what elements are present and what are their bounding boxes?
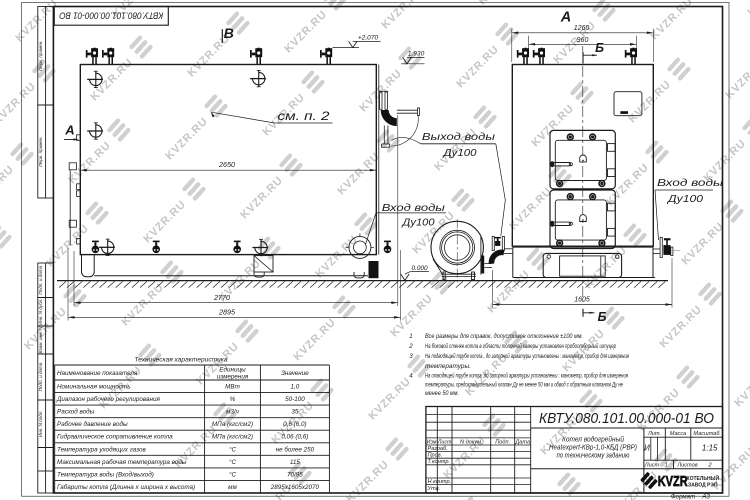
svg-text:Вход воды: Вход воды bbox=[382, 202, 445, 214]
svg-text:Подп. и дата: Подп. и дата bbox=[38, 362, 43, 391]
svg-text:3: 3 bbox=[409, 353, 413, 360]
svg-text:0,6 (6,0): 0,6 (6,0) bbox=[283, 421, 306, 428]
svg-text:Рабочее давление воды: Рабочее давление воды bbox=[57, 420, 128, 428]
svg-text:Взам. инв. N: Взам. инв. N bbox=[38, 326, 43, 353]
svg-text:Ду100: Ду100 bbox=[667, 194, 704, 205]
svg-text:Масштаб: Масштаб bbox=[693, 431, 720, 437]
svg-text:Подп. и дата: Подп. и дата bbox=[38, 265, 43, 294]
svg-text:Heatexpert-КВр-1,0-КБД (РВР): Heatexpert-КВр-1,0-КБД (РВР) bbox=[549, 445, 637, 452]
svg-text:Котел водогрейный: Котел водогрейный bbox=[562, 436, 624, 444]
svg-text:Вход воды: Вход воды bbox=[657, 177, 723, 189]
svg-text:Подп.: Подп. bbox=[495, 439, 510, 445]
svg-text:Формат: Формат bbox=[671, 494, 696, 500]
svg-text:Температура воды (Вход/выход): Температура воды (Вход/выход) bbox=[57, 470, 154, 478]
svg-text:KVZR: KVZR bbox=[658, 474, 688, 490]
svg-text:2: 2 bbox=[408, 343, 413, 350]
svg-text:мм: мм bbox=[228, 484, 237, 491]
svg-text:Изм: Изм bbox=[427, 439, 437, 445]
svg-text:Масса: Масса bbox=[670, 431, 687, 437]
svg-text:Н.контр.: Н.контр. bbox=[428, 479, 452, 485]
svg-text:Диапазон рабочего регулировани: Диапазон рабочего регулирования bbox=[56, 395, 160, 403]
svg-text:Выход воды: Выход воды bbox=[422, 131, 495, 143]
svg-text:И: И bbox=[644, 443, 650, 452]
svg-text:35: 35 bbox=[291, 409, 299, 416]
svg-text:м3/ч: м3/ч bbox=[226, 409, 240, 416]
svg-text:2650: 2650 bbox=[218, 160, 235, 169]
svg-text:КВТУ.080.101.00.000-01 ВО: КВТУ.080.101.00.000-01 ВО bbox=[59, 11, 164, 22]
svg-text:менее 50 мм.: менее 50 мм. bbox=[425, 390, 459, 397]
svg-text:Температура уходящих газов: Температура уходящих газов bbox=[57, 445, 146, 453]
svg-text:На подводящей трубе котла ,: На подводящей трубе котла , до запорной … bbox=[425, 353, 629, 360]
svg-text:не более 250: не более 250 bbox=[276, 445, 315, 453]
svg-text:температуры.: температуры. bbox=[425, 363, 471, 370]
svg-text:ЗАВОД РЭП: ЗАВОД РЭП bbox=[688, 483, 718, 489]
svg-text:МПа (кгс/см2): МПа (кгс/см2) bbox=[212, 421, 253, 428]
svg-text:Инв. N дубл.: Инв. N дубл. bbox=[38, 298, 43, 325]
svg-text:Единицы: Единицы bbox=[219, 365, 246, 373]
svg-text:Гидравлическое сопративление к: Гидравлическое сопративление котла bbox=[57, 433, 173, 441]
svg-text:1:15: 1:15 bbox=[702, 443, 718, 452]
svg-text:Лист: Лист bbox=[644, 462, 660, 468]
svg-text:Дата: Дата bbox=[514, 439, 530, 445]
svg-text:0,06 (0,6): 0,06 (0,6) bbox=[281, 434, 308, 441]
svg-text:2770: 2770 bbox=[213, 293, 230, 302]
svg-text:температуры, предохранительный: температуры, предохранительный клапан Ду… bbox=[425, 382, 623, 389]
svg-text:960: 960 bbox=[577, 37, 589, 44]
svg-text:50-100: 50-100 bbox=[285, 396, 305, 403]
svg-text:см. п. 2: см. п. 2 bbox=[278, 109, 330, 123]
svg-text:Техническая характеристика: Техническая характеристика bbox=[135, 357, 228, 364]
svg-text:°С: °С bbox=[229, 445, 237, 453]
svg-text:1: 1 bbox=[409, 333, 412, 340]
svg-text:°С: °С bbox=[229, 458, 237, 466]
svg-text:Разраб.: Разраб. bbox=[428, 446, 448, 452]
svg-text:Листов: Листов bbox=[676, 462, 697, 468]
svg-text:Пров.: Пров. bbox=[428, 453, 443, 459]
svg-text:КОТЕЛЬНЫЙ: КОТЕЛЬНЫЙ bbox=[687, 474, 720, 482]
svg-text:Наименование показателя: Наименование показателя bbox=[57, 370, 138, 377]
svg-text:Т.контр.: Т.контр. bbox=[428, 459, 451, 465]
svg-text:Максимальная рабочая температу: Максимальная рабочая температура воды bbox=[57, 458, 187, 466]
svg-text:1260: 1260 bbox=[574, 25, 590, 32]
svg-text:N докум.: N докум. bbox=[460, 439, 483, 445]
svg-text:измерения: измерения bbox=[217, 373, 249, 380]
svg-text:115: 115 bbox=[290, 459, 301, 466]
svg-text:%: % bbox=[230, 396, 236, 403]
svg-text:А: А bbox=[64, 123, 74, 138]
svg-text:Б: Б bbox=[598, 310, 607, 324]
svg-text:по техническому заданию: по техническому заданию bbox=[557, 452, 631, 460]
svg-text:МВт: МВт bbox=[225, 384, 240, 391]
svg-text:Все размеры для справок, допус: Все размеры для справок, допустимое откл… bbox=[425, 333, 583, 340]
svg-text:2895: 2895 bbox=[218, 307, 236, 316]
svg-text:На боковой стенке котла в обла: На боковой стенке котла в области топочн… bbox=[425, 343, 616, 350]
svg-text:Перв. примен.: Перв. примен. bbox=[38, 40, 43, 71]
svg-text:КВТУ.080.101.00.000-01 ВО: КВТУ.080.101.00.000-01 ВО bbox=[539, 410, 714, 427]
svg-text:Ду100: Ду100 bbox=[442, 148, 477, 159]
svg-text:А: А bbox=[560, 10, 571, 26]
svg-text:1: 1 bbox=[664, 462, 667, 468]
svg-text:Утв.: Утв. bbox=[427, 486, 441, 492]
svg-text:70/95: 70/95 bbox=[287, 471, 303, 478]
svg-text:Инв. N подл.: Инв. N подл. bbox=[38, 410, 43, 437]
svg-text:2895х1605х2070: 2895х1605х2070 bbox=[270, 484, 320, 491]
svg-text:Номинальная мощность: Номинальная мощность bbox=[57, 384, 131, 391]
svg-text:0.000: 0.000 bbox=[412, 265, 428, 272]
svg-text:А3: А3 bbox=[701, 494, 710, 500]
svg-text:На отводящей трубе котла ,до з: На отводящей трубе котла ,до запорной ар… bbox=[425, 373, 628, 380]
svg-text:1,0: 1,0 bbox=[291, 384, 300, 391]
svg-text:1605: 1605 bbox=[574, 297, 590, 304]
svg-text:Лист: Лист bbox=[437, 439, 452, 445]
svg-text:В: В bbox=[224, 25, 234, 41]
svg-text:Расход воды: Расход воды bbox=[57, 408, 95, 416]
svg-text:Значение: Значение bbox=[281, 370, 309, 377]
svg-text:Лит.: Лит. bbox=[647, 431, 661, 437]
svg-text:Габариты котла (Длинна х шир: Габариты котла (Длинна х ширина х высота… bbox=[57, 483, 195, 491]
svg-text:МПа (кгс/см2): МПа (кгс/см2) bbox=[212, 434, 253, 441]
svg-text:4: 4 bbox=[409, 373, 413, 380]
svg-text:Б: Б bbox=[595, 41, 604, 55]
svg-text:1,930: 1,930 bbox=[408, 51, 425, 58]
svg-text:Ду100: Ду100 bbox=[401, 217, 435, 228]
svg-text:Перв. примен.: Перв. примен. bbox=[38, 136, 43, 167]
svg-text:°С: °С bbox=[229, 470, 237, 478]
svg-text:+2,070: +2,070 bbox=[358, 35, 379, 42]
